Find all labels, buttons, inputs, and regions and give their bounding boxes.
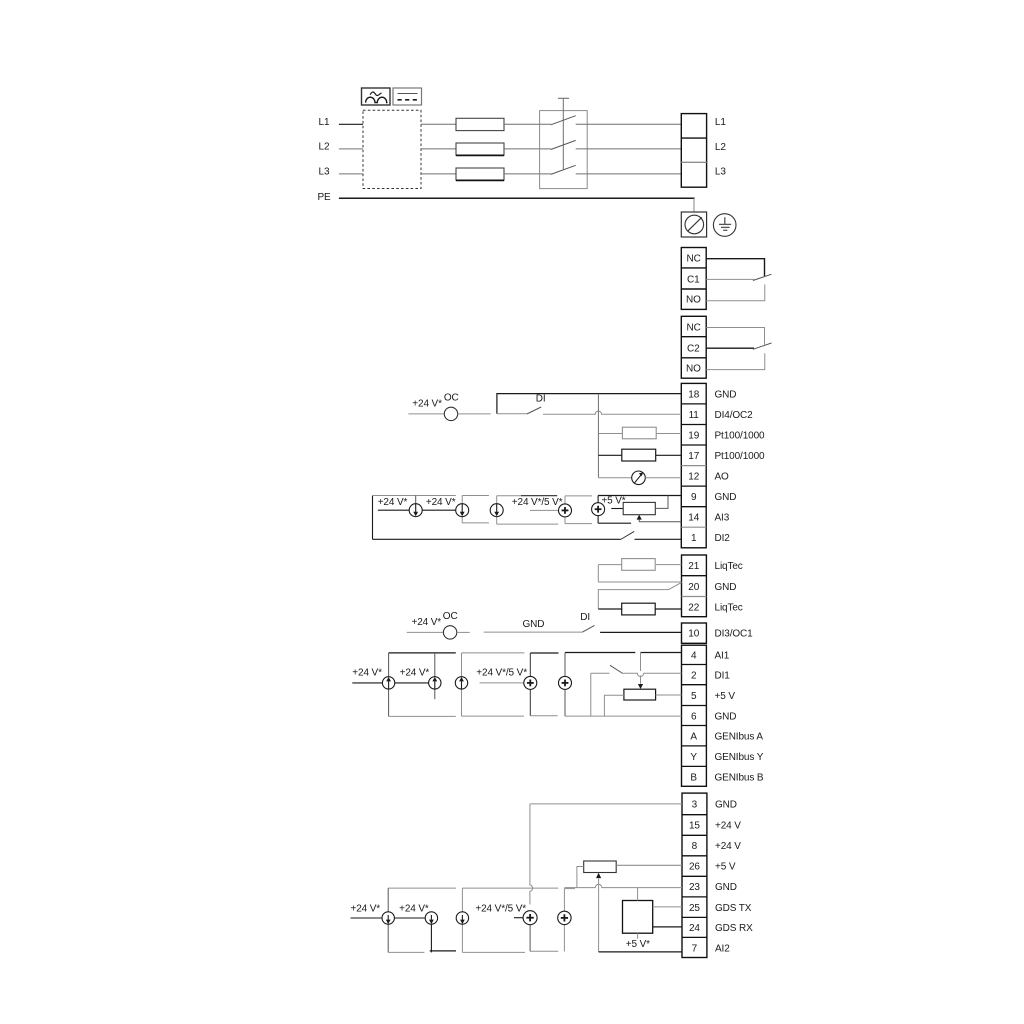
svg-text:26: 26 xyxy=(689,862,700,873)
svg-text:A: A xyxy=(690,732,697,743)
svg-text:AI2: AI2 xyxy=(715,943,730,954)
svg-text:18: 18 xyxy=(688,389,699,400)
svg-text:LiqTec: LiqTec xyxy=(715,561,743,572)
svg-text:OC: OC xyxy=(444,392,459,403)
svg-text:L3: L3 xyxy=(715,167,726,178)
svg-text:24: 24 xyxy=(689,923,700,934)
svg-text:17: 17 xyxy=(688,451,699,462)
svg-text:C2: C2 xyxy=(687,343,700,354)
svg-text:14: 14 xyxy=(688,513,699,524)
svg-text:AO: AO xyxy=(715,472,730,483)
svg-text:+24 V: +24 V xyxy=(715,841,741,852)
svg-text:L1: L1 xyxy=(715,117,726,128)
svg-text:GND: GND xyxy=(715,711,737,722)
svg-text:GENIbus Y: GENIbus Y xyxy=(715,752,764,763)
svg-text:NC: NC xyxy=(687,254,701,265)
svg-text:AI3: AI3 xyxy=(715,513,730,524)
svg-text:+24 V*: +24 V* xyxy=(400,668,430,679)
svg-text:8: 8 xyxy=(692,841,698,852)
svg-text:DI: DI xyxy=(580,612,590,623)
svg-text:+5 V*: +5 V* xyxy=(626,939,650,950)
svg-text:AI1: AI1 xyxy=(715,651,730,662)
svg-text:4: 4 xyxy=(691,651,697,662)
svg-text:GND: GND xyxy=(715,389,737,400)
svg-text:11: 11 xyxy=(689,410,700,421)
svg-text:21: 21 xyxy=(688,561,699,572)
svg-text:10: 10 xyxy=(688,629,699,640)
svg-text:+5 V: +5 V xyxy=(715,691,736,702)
svg-text:19: 19 xyxy=(688,431,699,442)
svg-text:+5 V*: +5 V* xyxy=(601,496,625,507)
svg-text:+24 V*/5 V*: +24 V*/5 V* xyxy=(512,497,563,508)
svg-text:GND: GND xyxy=(715,800,737,811)
svg-text:+24 V*: +24 V* xyxy=(352,668,382,679)
svg-text:GND: GND xyxy=(715,582,737,593)
svg-text:LiqTec: LiqTec xyxy=(715,602,743,613)
svg-text:GDS TX: GDS TX xyxy=(715,903,752,914)
svg-text:NO: NO xyxy=(686,295,701,306)
svg-text:6: 6 xyxy=(691,711,697,722)
svg-text:+24 V*: +24 V* xyxy=(426,497,456,508)
svg-text:DI2: DI2 xyxy=(715,533,731,544)
svg-text:DI3/OC1: DI3/OC1 xyxy=(715,629,754,640)
svg-text:Pt100/1000: Pt100/1000 xyxy=(715,451,766,462)
svg-text:9: 9 xyxy=(691,492,697,503)
svg-text:2: 2 xyxy=(691,670,697,681)
svg-text:DI: DI xyxy=(536,393,546,404)
svg-text:7: 7 xyxy=(692,943,698,954)
svg-text:+24 V*: +24 V* xyxy=(412,399,442,410)
svg-text:+24 V*: +24 V* xyxy=(378,497,408,508)
svg-text:Y: Y xyxy=(690,752,697,763)
svg-text:5: 5 xyxy=(691,691,697,702)
svg-text:L2: L2 xyxy=(319,142,330,153)
svg-text:1: 1 xyxy=(691,533,697,544)
svg-text:NO: NO xyxy=(686,363,701,374)
svg-text:GDS RX: GDS RX xyxy=(715,923,753,934)
svg-text:3: 3 xyxy=(692,800,698,811)
svg-text:15: 15 xyxy=(689,821,700,832)
svg-text:DI1: DI1 xyxy=(715,670,731,681)
svg-text:+5 V: +5 V xyxy=(715,862,736,873)
svg-text:25: 25 xyxy=(689,903,700,914)
svg-text:+24 V*/5 V*: +24 V*/5 V* xyxy=(475,904,526,915)
svg-text:B: B xyxy=(690,772,697,783)
svg-text:OC: OC xyxy=(443,611,458,622)
svg-text:DI4/OC2: DI4/OC2 xyxy=(715,410,754,421)
svg-text:PE: PE xyxy=(318,192,332,203)
svg-text:GND: GND xyxy=(715,492,737,503)
svg-text:L1: L1 xyxy=(319,117,330,128)
svg-text:GND: GND xyxy=(715,882,737,893)
svg-text:+24 V*: +24 V* xyxy=(399,904,429,915)
svg-text:+24 V*: +24 V* xyxy=(412,617,442,628)
svg-text:22: 22 xyxy=(688,602,699,613)
svg-text:C1: C1 xyxy=(687,275,700,286)
svg-text:L3: L3 xyxy=(319,166,330,177)
svg-text:GENIbus B: GENIbus B xyxy=(715,772,764,783)
svg-text:L2: L2 xyxy=(715,142,726,153)
svg-text:Pt100/1000: Pt100/1000 xyxy=(715,431,766,442)
svg-text:+24 V: +24 V xyxy=(715,821,741,832)
svg-text:+24 V*/5 V*: +24 V*/5 V* xyxy=(476,668,527,679)
svg-text:GENIbus A: GENIbus A xyxy=(715,732,764,743)
svg-text:23: 23 xyxy=(689,882,700,893)
svg-text:GND: GND xyxy=(523,619,545,630)
svg-text:20: 20 xyxy=(688,582,699,593)
svg-text:NC: NC xyxy=(687,322,701,333)
svg-text:12: 12 xyxy=(688,472,699,483)
svg-text:+24 V*: +24 V* xyxy=(351,904,381,915)
